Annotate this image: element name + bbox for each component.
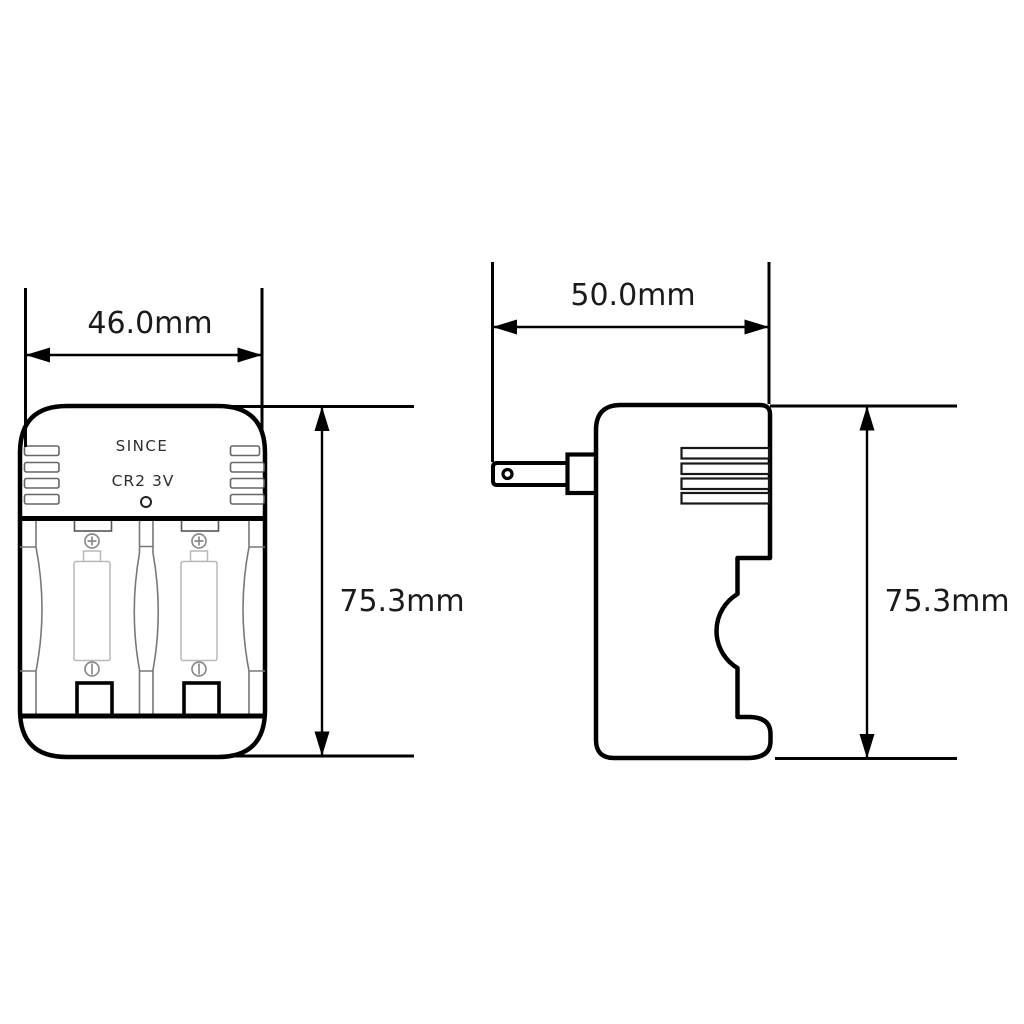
side-view xyxy=(493,405,771,758)
dim-label-side-width: 50.0mm xyxy=(570,278,695,313)
arrowhead-right xyxy=(238,348,263,363)
arrowhead-down xyxy=(860,734,875,759)
model-text: CR2 3V xyxy=(112,472,175,490)
brand-text: SINCE xyxy=(116,437,169,455)
dimension-drawing-page: SINCE CR2 3V xyxy=(0,0,1024,1024)
dim-side-height: 75.3mm xyxy=(770,406,1010,759)
battery-body xyxy=(181,562,217,661)
battery-body xyxy=(74,562,110,661)
dim-label-front-width: 46.0mm xyxy=(87,306,212,341)
bottom-contact xyxy=(77,683,112,716)
arrowhead-up xyxy=(315,407,330,432)
battery-tip xyxy=(191,551,208,562)
dim-label-front-height: 75.3mm xyxy=(339,584,464,619)
vent-slat xyxy=(682,479,770,490)
arrowhead-left xyxy=(493,320,518,335)
dim-label-side-height: 75.3mm xyxy=(884,584,1009,619)
vent-slat xyxy=(231,446,260,456)
vent-slat xyxy=(682,464,770,475)
arrowhead-down xyxy=(315,732,330,757)
indicator-led xyxy=(141,497,151,507)
bottom-contact xyxy=(184,683,219,716)
charger-dimension-drawing: SINCE CR2 3V xyxy=(0,0,1024,1024)
vent-slat xyxy=(231,479,265,489)
arrowhead-up xyxy=(860,406,875,431)
battery-tip xyxy=(84,551,101,562)
vent-slat xyxy=(231,463,265,473)
arrowhead-right xyxy=(745,320,770,335)
vent-slat xyxy=(25,479,60,489)
vent-slat xyxy=(25,446,60,456)
front-view: SINCE CR2 3V xyxy=(20,406,265,757)
vent-slat xyxy=(682,448,770,459)
vent-slat xyxy=(231,495,265,505)
plug-base xyxy=(568,455,598,494)
vent-slat xyxy=(682,493,770,504)
vent-slat xyxy=(25,495,60,505)
vent-slat xyxy=(25,463,60,473)
front-body-outline xyxy=(20,406,265,757)
plug-blade xyxy=(493,463,568,485)
arrowhead-left xyxy=(26,348,51,363)
blade-hole xyxy=(503,470,512,479)
